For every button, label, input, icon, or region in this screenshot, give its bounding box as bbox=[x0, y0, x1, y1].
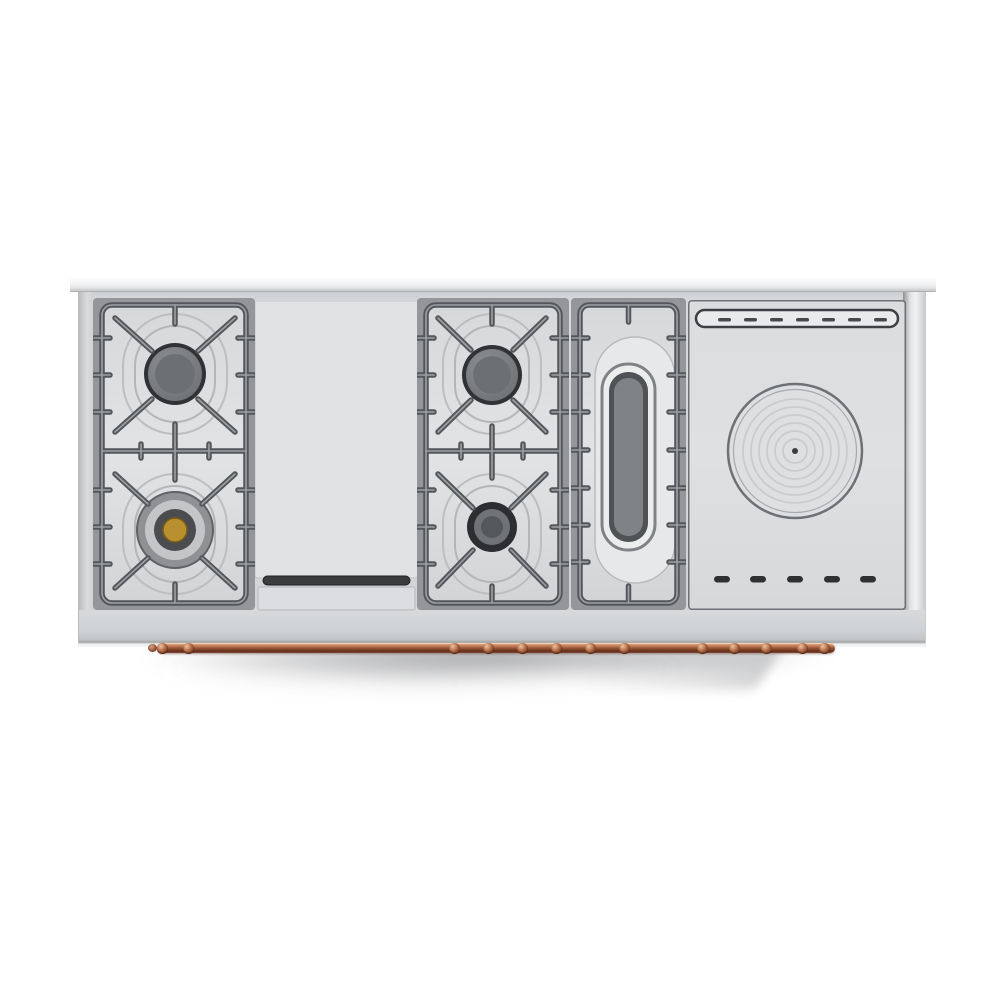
vent-slot bbox=[714, 576, 730, 583]
griddle-plate bbox=[255, 296, 418, 578]
product-photo bbox=[0, 0, 1000, 1000]
rear-burner bbox=[462, 345, 522, 405]
griddle-top-shade bbox=[255, 296, 418, 302]
copper-rail-link bbox=[483, 643, 494, 654]
drip-tray bbox=[258, 587, 415, 610]
copper-rail-link bbox=[157, 643, 168, 654]
copper-rail-hook bbox=[148, 644, 157, 652]
copper-rail-link bbox=[183, 643, 194, 654]
vent-slot bbox=[860, 576, 876, 583]
left-side-panel bbox=[78, 292, 93, 643]
front-edge-strip bbox=[79, 610, 925, 647]
copper-rail-link bbox=[551, 643, 562, 654]
copper-rail-link bbox=[585, 643, 596, 654]
rear-vent-slot bbox=[696, 310, 898, 327]
copper-rail bbox=[157, 643, 835, 653]
oval-burner-center bbox=[614, 378, 643, 536]
plate-center-cap bbox=[792, 448, 798, 454]
round-simmer-plate bbox=[728, 384, 862, 518]
grease-trough bbox=[263, 576, 410, 585]
copper-rail-link bbox=[517, 643, 528, 654]
brass-cap bbox=[163, 518, 187, 542]
vent-slot bbox=[824, 576, 840, 583]
copper-rail-link bbox=[449, 643, 460, 654]
copper-rail-link bbox=[797, 643, 808, 654]
solid-plate-section bbox=[688, 300, 906, 610]
copper-rail-link bbox=[619, 643, 630, 654]
copper-rail-link bbox=[819, 643, 830, 654]
copper-rail-link bbox=[761, 643, 772, 654]
vent-slot bbox=[750, 576, 766, 583]
right-side-panel bbox=[903, 292, 926, 643]
copper-rail-link bbox=[729, 643, 740, 654]
back-trim-ledge bbox=[70, 278, 936, 292]
oval-burner-section bbox=[571, 298, 686, 610]
copper-rail-link bbox=[697, 643, 708, 654]
griddle-section bbox=[255, 296, 418, 612]
vent-slot bbox=[787, 576, 803, 583]
center-burner-section bbox=[417, 298, 569, 610]
drop-shadow-soft bbox=[150, 650, 690, 690]
left-burner-section bbox=[93, 298, 255, 610]
